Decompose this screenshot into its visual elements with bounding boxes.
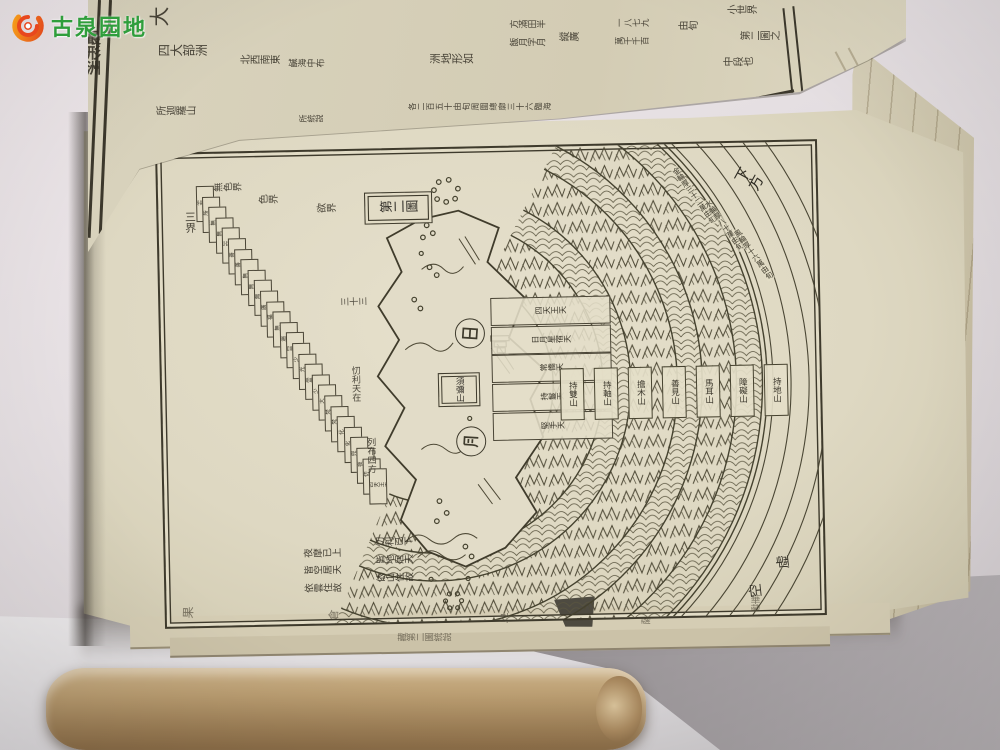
void-label-char: 虛 [772,554,793,570]
leaf-right-caption: 第二圖之 [732,32,788,44]
down-direction-label: 下方 [735,156,760,202]
leaf-ring-mountain: 所迦羅山 [152,106,200,119]
note-row: 依雲住故 [294,580,352,598]
mountain-name-box: 擔木山 [628,367,653,419]
photo-stage: 果 倉 藏第二圖統說 早 薩 華藏 [0,0,1000,750]
mountain-name-box: 障礙山 [730,364,755,416]
leaf-figures: 萬千千百 [610,36,654,48]
earth-dweller-note: 忉利已下皆地居天依山住故 [365,533,426,592]
rolled-paper-end [596,676,642,742]
leaf-shape-item: 方滿田半 [504,20,550,32]
mountain-name-box: 善見山 [662,366,687,418]
realm-formless-label: 無色界 [208,181,248,196]
figure-title-box: 第二圖 [364,191,433,224]
watermark-site-name: 古泉园地 [51,10,147,42]
coin-swirl-icon [10,8,46,44]
realm-three-label: 三界 [182,196,198,248]
leaf-shape-label: 洲地形如 [426,52,476,66]
terrace-row: 日月星宿天 [491,324,612,355]
leaf-sea-note: 鹹海中布 [284,59,328,71]
figure-title: 第二圖 [379,201,418,215]
leaf-frame-line [792,6,804,96]
seven-mountains-row: 持雙山持軸山擔木山善見山馬耳山障礙山持地山 [560,363,807,422]
leaf-shape-item: 飯月字月 [504,38,550,50]
leaf-measure-row: 各二百五十由旬周圍總廓三十六臨海 [350,100,610,113]
sun-glyph [462,327,479,340]
mountain-name-box: 持雙山 [560,368,585,420]
terrace-row: 四天王天 [490,295,611,326]
note-row: 皆空居天 [294,562,352,580]
leaf-right-caption: 中段也 [714,58,762,70]
void-label-char: 空 [745,582,766,598]
realm-desire-label: 欲界 [312,203,340,217]
leaf-figures: 一八七九 [610,18,654,30]
watermark: 古泉园地 [10,8,147,44]
leaf-heading: 大 [144,7,173,27]
thirty-three-label: 三十三 [338,297,368,311]
mountain-name-box: 持軸山 [594,367,619,419]
sky-dweller-note: 夜摩已上皆空居天依雲住故 [293,545,354,602]
note-row: 夜摩已上 [293,545,351,563]
leaf-unit: 由旬 [674,22,702,34]
realm-form-label: 色界 [254,194,282,208]
sumeru-name-box: 須彌山 [438,372,481,407]
note-row: 皆地居天 [366,551,424,569]
leaf-frame-line [782,8,794,96]
leaf-right-caption: 小世界 [718,6,766,18]
moon-glyph [463,435,480,448]
sumeru-name: 須彌山 [455,377,464,403]
mountain-name-box: 馬耳山 [696,365,721,417]
summit-note-col: 列布四方 [363,424,377,486]
mountain-name-box: 持地山 [764,364,789,416]
wheel-band-label: 風輪厚十六萬由旬 [716,208,791,301]
leaf-extent-label: 縱廣 [554,32,584,45]
rolled-paper [46,668,646,750]
note-row: 依山住故 [366,569,424,587]
diagram-frame: 非想非非想天無所有處天識無邊處天空無邊處天色究竟天善現天善見天無熱天無煩天無想天… [155,139,827,629]
note-row: 忉利已下 [365,533,423,551]
leaf-directions: 北西南東 [236,55,284,68]
leaf-note: 所統說 [294,113,328,125]
summit-note-col: 忉利天在 [347,355,361,413]
leaf-continents-label: 四大部洲 [150,44,214,59]
heaven-staircase: 非想非非想天無所有處天識無邊處天空無邊處天色究竟天善現天善見天無熱天無煩天無想天… [192,178,411,526]
